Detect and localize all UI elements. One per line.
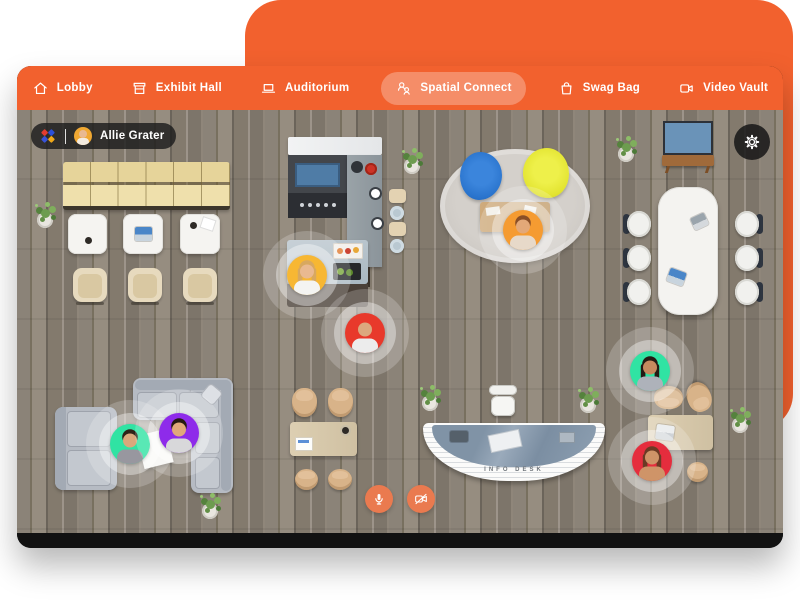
potted-plant [571,385,605,419]
white-table [68,214,107,254]
potted-plant [609,134,643,168]
nav-label: Auditorium [285,82,349,94]
nav-label: Lobby [57,82,93,94]
appliance-knobs [300,203,304,207]
laptop [690,212,709,230]
kitchen-counter-top [288,137,382,155]
home-icon [32,80,49,97]
bar-stool [389,189,406,203]
wooden-stool [328,469,352,490]
office-floor: INFO DESK [17,110,783,533]
nav-item-swag-bag[interactable]: Swag Bag [552,72,646,105]
nav-item-exhibit-hall[interactable]: Exhibit Hall [125,72,228,105]
tv-stand [662,155,714,166]
nav-item-video-vault[interactable]: Video Vault [672,72,774,105]
user-name: Allie Grater [100,130,164,142]
user-avatar [74,127,92,145]
spatial-map: INFO DESK [17,110,783,548]
nav-item-spatial-connect[interactable]: Spatial Connect [381,72,525,105]
camera-off-icon [413,491,429,507]
nav-label: Swag Bag [583,82,640,94]
reception-chair [489,385,517,395]
nav-label: Exhibit Hall [156,82,222,94]
tv-screen [665,123,711,153]
armchair [128,268,162,302]
nav-label: Video Vault [703,82,768,94]
office-chair [623,243,653,273]
nav-item-lobby[interactable]: Lobby [26,72,99,105]
office-chair [733,277,763,307]
armchair [183,268,217,302]
camera-off-button[interactable] [407,485,435,513]
microphone-button[interactable] [365,485,393,513]
divider [65,129,66,144]
wooden-table [290,422,357,456]
potted-plant [413,383,447,417]
video-camera-icon [678,80,695,97]
gear-icon [742,132,762,152]
brand-logo-icon [39,127,57,145]
conference-table [658,187,718,315]
coffee-cup [85,237,92,244]
laptop-icon [260,80,277,97]
office-chair [623,209,653,239]
info-desk-label: INFO DESK [423,467,605,473]
coffee-cup [342,427,349,434]
laptop [666,268,687,287]
reception-chair-seat [491,396,515,416]
settings-button[interactable] [734,124,770,160]
potted-plant [723,405,757,439]
white-table [123,214,163,254]
office-chair [623,277,653,307]
nav-label: Spatial Connect [420,82,511,94]
desk-papers [489,430,522,452]
coffee-cup [371,189,380,198]
wooden-stool [295,469,318,490]
user-badge[interactable]: Allie Grater [31,123,176,149]
desk-item [560,433,574,442]
top-navigation-bar: Lobby Exhibit Hall Auditorium Spatial Co… [17,66,783,110]
laptop [135,227,152,241]
microphone-icon [371,491,387,507]
virtual-event-app: Lobby Exhibit Hall Auditorium Spatial Co… [0,0,800,600]
kitchen-appliance [288,155,347,218]
nav-menu: Lobby Exhibit Hall Auditorium Spatial Co… [26,72,774,105]
coffee-cup [373,219,382,228]
office-chair [733,243,763,273]
appliance-screen [295,163,340,187]
armchair [73,268,107,302]
potted-plant [28,200,62,234]
kettle [351,161,363,173]
papers [296,438,312,450]
bar-stool-seat [390,206,404,220]
bar-stool-seat [390,239,404,253]
nav-item-auditorium[interactable]: Auditorium [254,72,355,105]
wooden-chair [328,388,353,417]
papers [201,217,216,230]
white-table [180,214,220,254]
users-icon [395,80,412,97]
tv-stand-legs [665,166,670,173]
wooden-chair [292,388,317,417]
potted-plant [395,146,429,180]
bar-stool [389,222,406,236]
sofa-yellow [63,162,230,210]
desk-monitor [450,431,468,442]
paper-print [298,440,309,443]
coffee-cup [190,222,197,229]
office-chair [733,209,763,239]
red-pot [365,163,377,175]
storefront-icon [131,80,148,97]
shopping-bag-icon [558,80,575,97]
appliance-panel [288,193,347,218]
app-window: Lobby Exhibit Hall Auditorium Spatial Co… [17,66,783,548]
potted-plant [193,491,227,525]
